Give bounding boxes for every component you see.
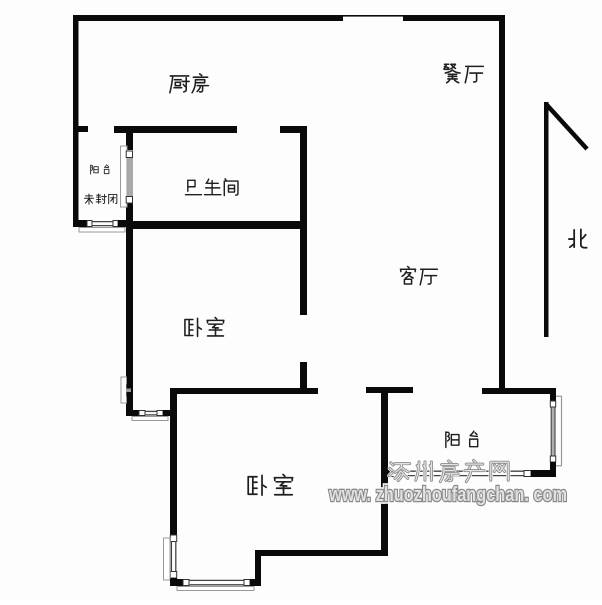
svg-text:www. zhuozhoufangchan. com: www. zhuozhoufangchan. com [328,483,567,506]
